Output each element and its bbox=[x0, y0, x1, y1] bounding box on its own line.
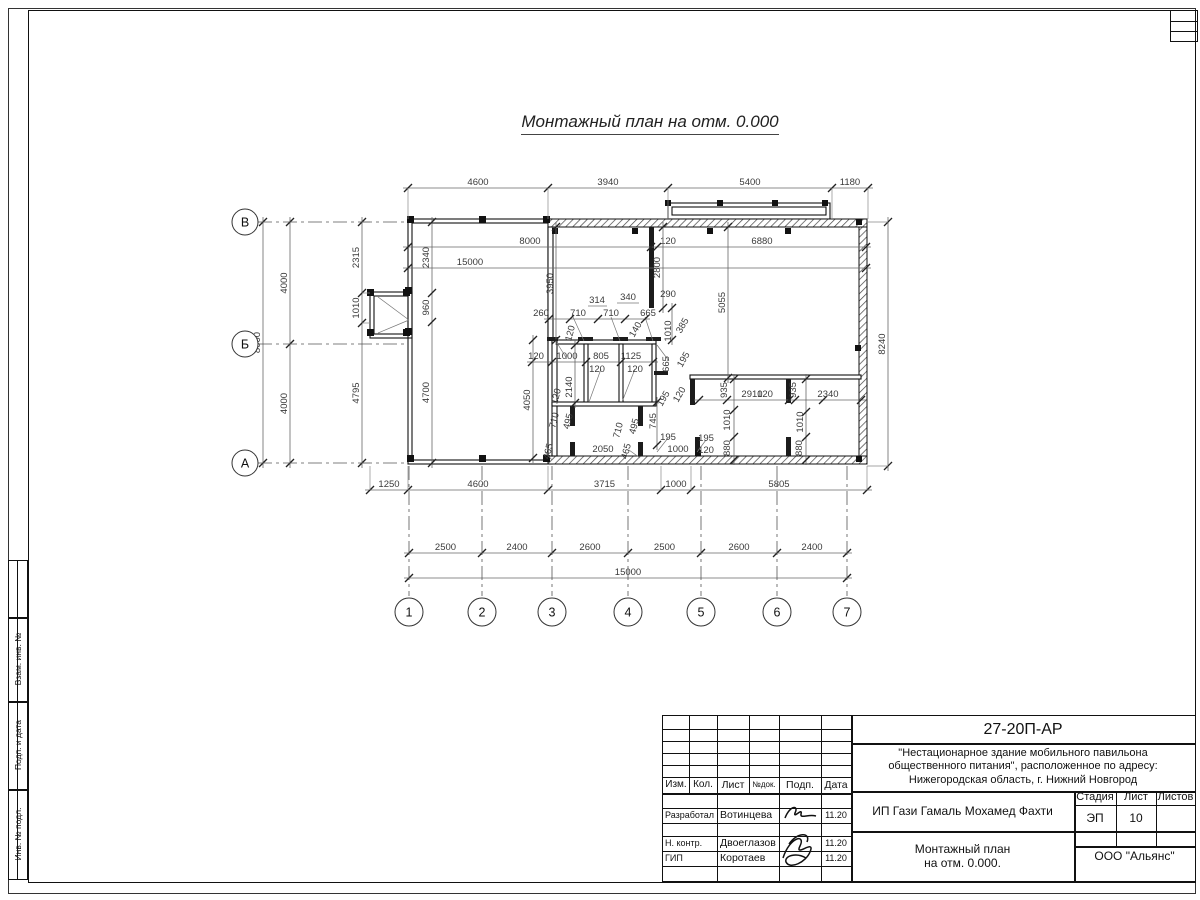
canopy-walls bbox=[668, 203, 830, 219]
dimension-text: 340 bbox=[620, 292, 636, 303]
dimension-text: 4050 bbox=[522, 389, 533, 410]
dimension-text: 880 bbox=[794, 440, 805, 456]
row-role: Н. контр. bbox=[665, 836, 717, 851]
col-axis-label: 1 bbox=[406, 606, 413, 620]
dimension-text: 120 bbox=[660, 236, 676, 247]
dimension-text: 6880 bbox=[751, 236, 772, 247]
dimension-text: 2400 bbox=[506, 542, 527, 553]
dimension-text: 4000 bbox=[279, 272, 290, 293]
dimension-text: 120 bbox=[671, 385, 688, 404]
dimension-text: 495 bbox=[627, 417, 642, 435]
dimension-text: 710 bbox=[570, 308, 586, 319]
dimension-text: 4000 bbox=[279, 393, 290, 414]
col-axis-label: 6 bbox=[774, 606, 781, 620]
client-name: ИП Гази Гамаль Мохамед Фахти bbox=[851, 791, 1074, 831]
dimension-text: 5805 bbox=[768, 479, 789, 490]
dimension-text: 8000 bbox=[519, 236, 540, 247]
col-header-kol: Кол. bbox=[689, 777, 717, 793]
dimension-text: 2500 bbox=[435, 542, 456, 553]
dimension-text: 2800 bbox=[652, 257, 663, 278]
dimension-text: 2140 bbox=[564, 376, 575, 397]
dimension-text: 120 bbox=[528, 351, 544, 362]
dimension-text: 1125 bbox=[621, 351, 641, 362]
col-axis-label: 3 bbox=[549, 606, 556, 620]
dimension-text: 710 bbox=[611, 421, 626, 439]
dimension-text: 880 bbox=[722, 440, 733, 456]
row-date: 11.20 bbox=[821, 836, 851, 851]
dimension-text: 935 bbox=[719, 382, 730, 398]
dimension-text: 960 bbox=[421, 300, 432, 316]
drawing-name: Монтажный план на отм. 0.000. bbox=[851, 831, 1074, 881]
dimension-text: 4795 bbox=[351, 382, 362, 403]
dimension-text: 3715 bbox=[594, 479, 615, 490]
dimension-text: 4700 bbox=[421, 382, 432, 403]
col-axis-label: 7 bbox=[844, 606, 851, 620]
object-description: "Нестационарное здание мобильного павиль… bbox=[853, 744, 1193, 790]
col-header-izm: Изм. bbox=[663, 777, 689, 793]
dimension-text: 2500 bbox=[654, 542, 675, 553]
row-axis-label: В bbox=[241, 216, 249, 230]
dimension-text: 120 bbox=[757, 389, 773, 400]
stage-label: Стадия bbox=[1074, 791, 1116, 805]
dimension-text: 2400 bbox=[801, 542, 822, 553]
sheet-label: Лист bbox=[1116, 791, 1156, 805]
dimension-text: 5055 bbox=[717, 292, 728, 313]
dimension-text: 805 bbox=[593, 351, 609, 362]
dimension-text: 745 bbox=[648, 413, 659, 429]
sheet-number: 10 bbox=[1116, 805, 1156, 831]
drawing-sheet: Взам. инв. № Подп. и дата Инв. № подл. М… bbox=[0, 0, 1200, 900]
dimension-text: 935 bbox=[788, 382, 799, 398]
dimension-text: 120 bbox=[589, 364, 605, 375]
dimension-text: 120 bbox=[627, 364, 643, 375]
dimension-text: 495 bbox=[561, 412, 576, 430]
dimension-text: 140 bbox=[627, 320, 644, 339]
dimension-text: 710 bbox=[603, 308, 619, 319]
sheets-total bbox=[1156, 805, 1195, 831]
dimension-text: 1010 bbox=[795, 411, 806, 432]
door-swing bbox=[378, 297, 409, 333]
dimension-text: 120 bbox=[698, 445, 714, 456]
dimension-text: 1000 bbox=[556, 351, 577, 362]
dimension-text: 1010 bbox=[351, 297, 362, 318]
dimension-text: 314 bbox=[589, 295, 605, 306]
dimension-text: 195 bbox=[698, 433, 714, 444]
col-axis-label: 2 bbox=[479, 606, 486, 620]
dimension-text: 260 bbox=[533, 308, 549, 319]
dimension-text: 1010 bbox=[722, 409, 733, 430]
dimension-text: 665 bbox=[640, 308, 656, 319]
dimension-text: 1000 bbox=[665, 479, 686, 490]
dimension-text: 2315 bbox=[351, 247, 362, 268]
dimension-text: 8240 bbox=[877, 333, 888, 354]
dimension-text: 2340 bbox=[421, 247, 432, 268]
col-header-list: Лист bbox=[717, 777, 749, 793]
dimension-text: 3940 bbox=[597, 177, 618, 188]
dimension-text: 195 bbox=[675, 350, 692, 369]
dimension-text: 195 bbox=[655, 389, 672, 408]
col-header-podp: Подп. bbox=[779, 777, 821, 793]
row-role: Разработал bbox=[665, 808, 717, 823]
row-name: Коротаев bbox=[720, 851, 780, 866]
dimension-text: 290 bbox=[660, 289, 676, 300]
col-axis-label: 5 bbox=[698, 606, 705, 620]
col-header-data: Дата bbox=[821, 777, 851, 793]
company-name: ООО "Альянс" bbox=[1074, 831, 1195, 881]
dimension-text: 2340 bbox=[817, 389, 838, 400]
dimension-text: 5400 bbox=[739, 177, 760, 188]
dimension-text: 15000 bbox=[457, 257, 483, 268]
dimension-text: 1180 bbox=[840, 177, 860, 188]
dimension-text: 2600 bbox=[579, 542, 600, 553]
title-block: Изм. Кол. Лист №док. Подп. Дата Разработ… bbox=[662, 715, 1196, 882]
col-header-ndok: №док. bbox=[749, 777, 779, 793]
dimension-text: 4600 bbox=[467, 479, 488, 490]
dimension-text: 2600 bbox=[728, 542, 749, 553]
row-axis-label: Б bbox=[241, 338, 249, 352]
signature-votintseva bbox=[781, 802, 821, 824]
dimension-text: 4600 bbox=[467, 177, 488, 188]
dimension-text: 665 bbox=[661, 356, 672, 372]
sheets-label: Листов bbox=[1156, 791, 1195, 805]
row-name: Вотинцева bbox=[720, 808, 780, 823]
dimension-text: 1010 bbox=[663, 320, 674, 341]
stage-value: ЭП bbox=[1074, 805, 1116, 831]
signature-dvoeglazov-korotaev bbox=[775, 830, 825, 878]
row-date: 11.20 bbox=[821, 851, 851, 866]
row-role: ГИП bbox=[665, 851, 717, 866]
dimension-text: 1000 bbox=[667, 444, 688, 455]
col-axis-label: 4 bbox=[625, 606, 632, 620]
dimension-text: 3950 bbox=[545, 273, 556, 294]
dimension-text: 195 bbox=[660, 432, 676, 443]
row-axis-label: А bbox=[241, 457, 250, 471]
row-date: 11.20 bbox=[821, 808, 851, 823]
dimension-text: 2050 bbox=[592, 444, 613, 455]
doc-code: 27-20П-АР bbox=[851, 716, 1195, 743]
row-name: Двоеглазов bbox=[720, 836, 780, 851]
dimension-text: 1250 bbox=[378, 479, 399, 490]
dimension-text: 385 bbox=[674, 316, 691, 335]
